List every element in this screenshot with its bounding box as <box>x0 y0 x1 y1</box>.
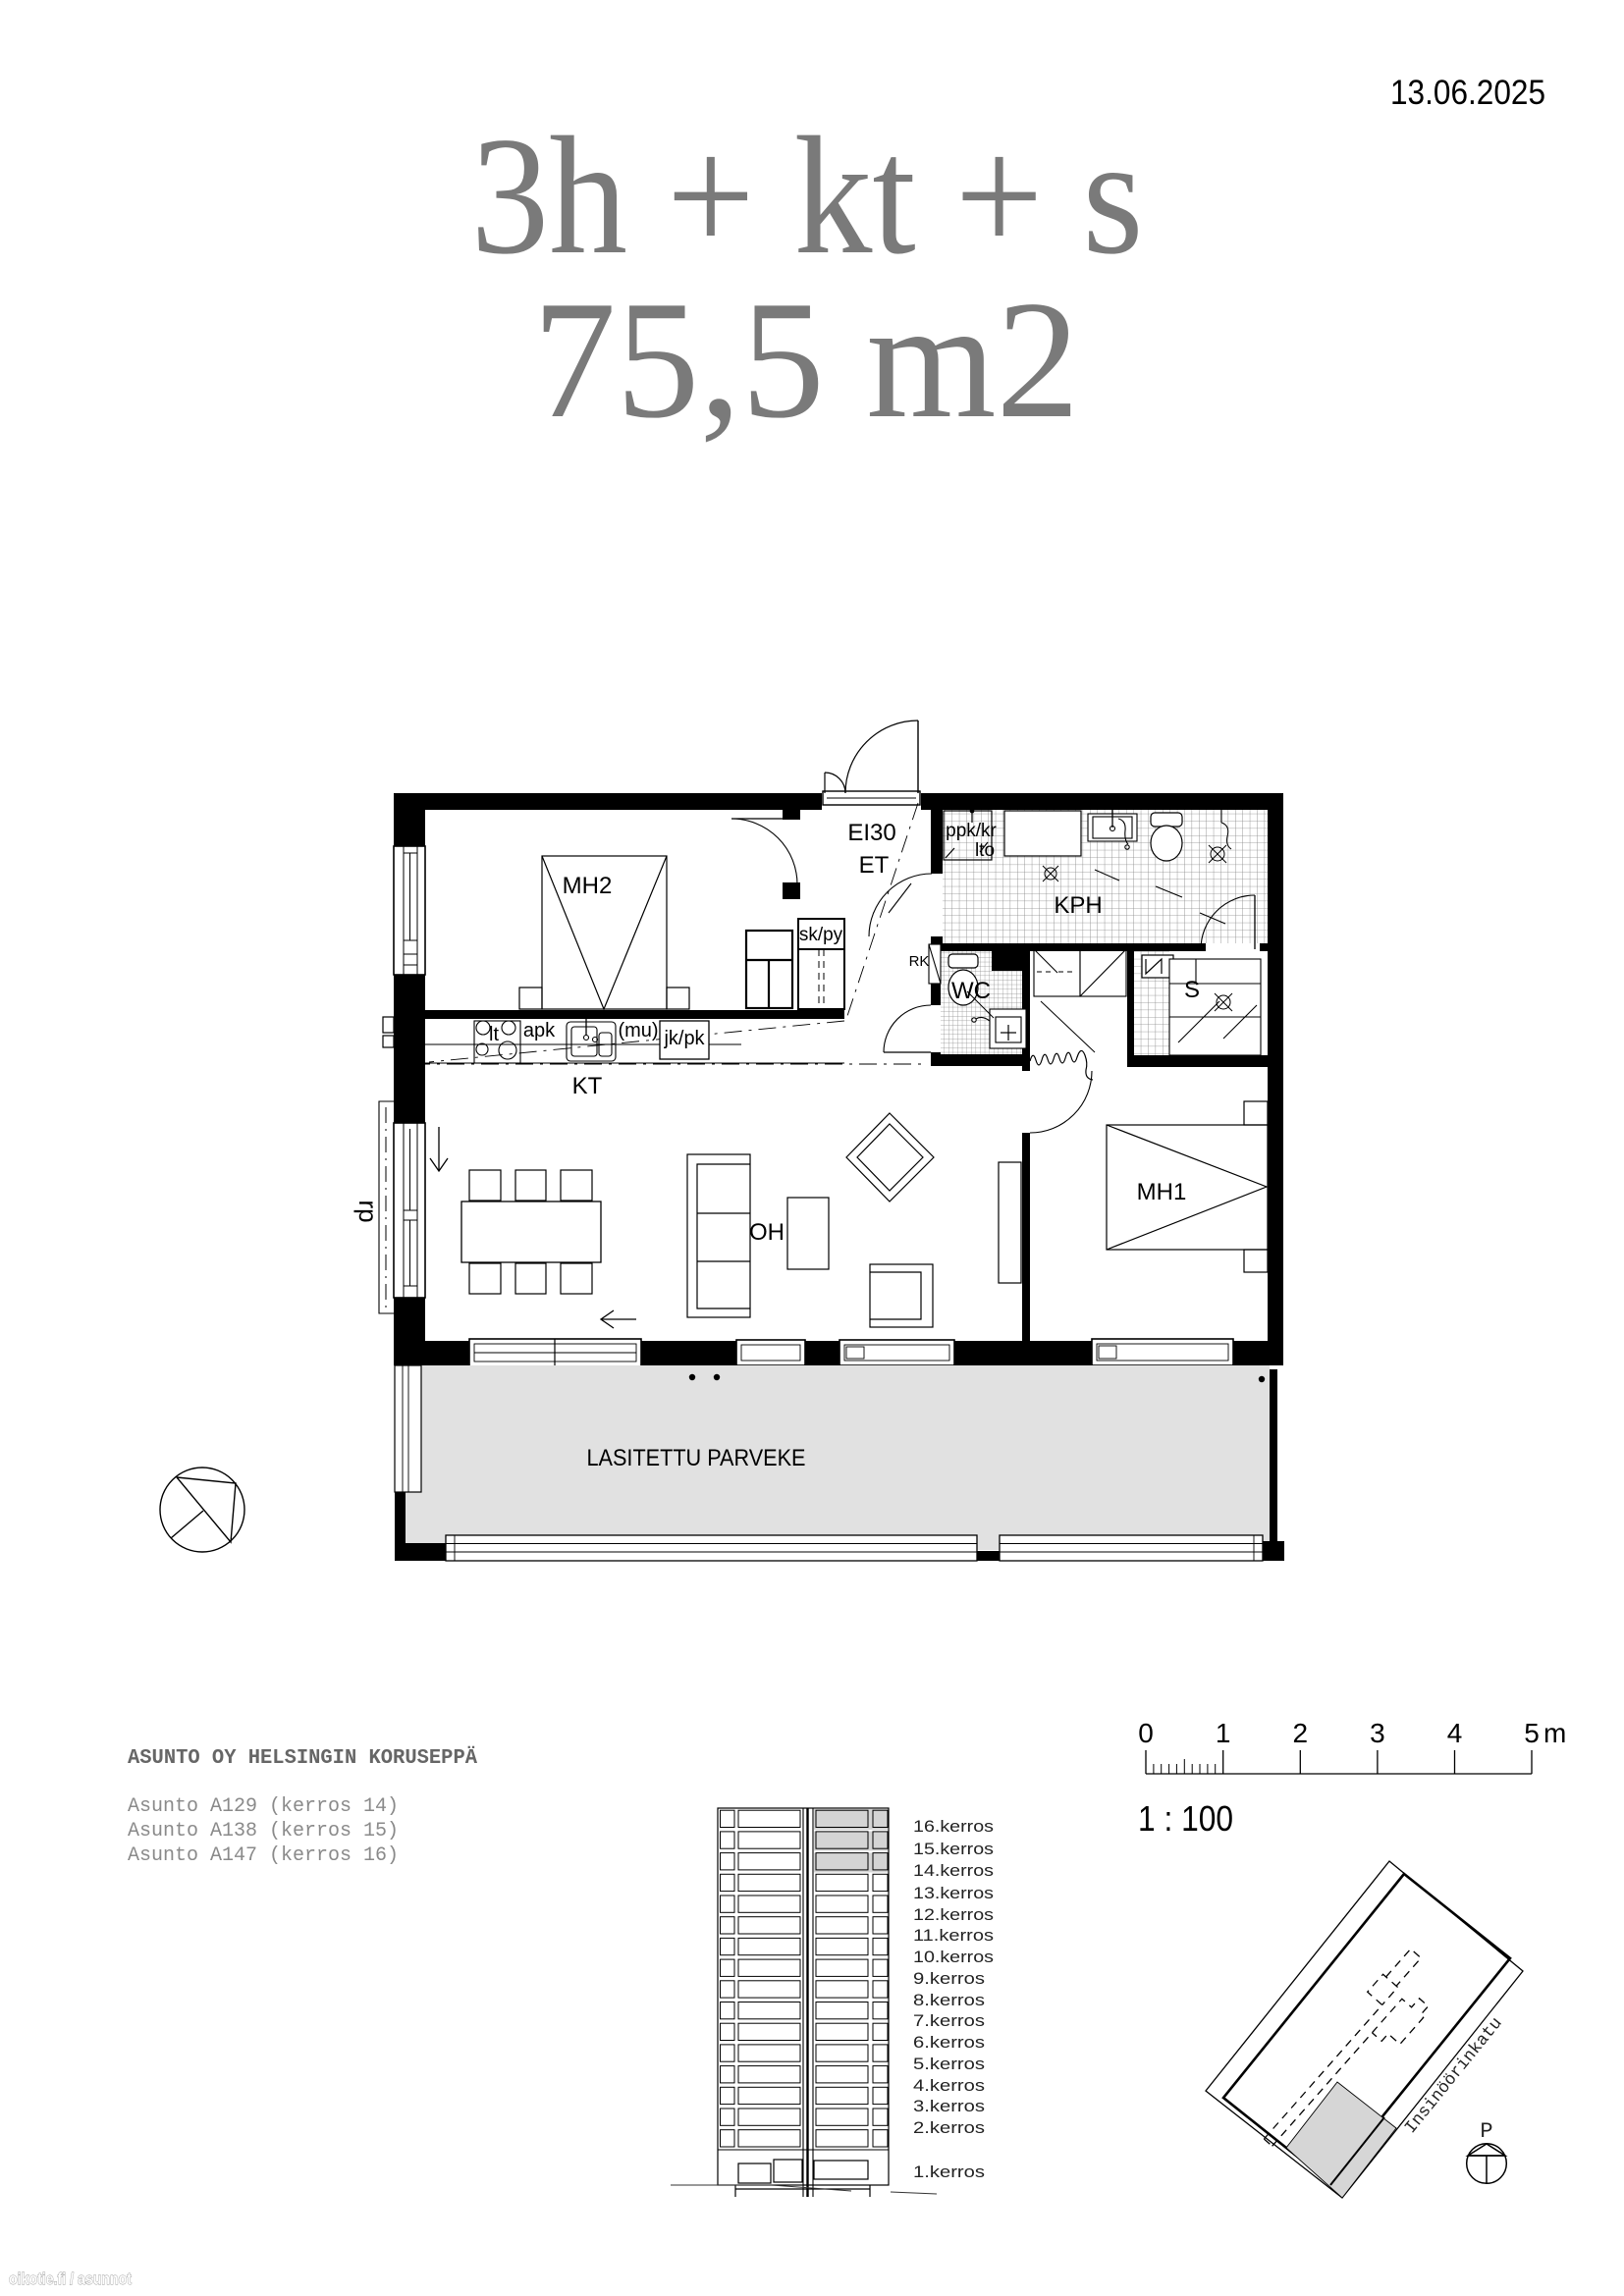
svg-text:jk/pk: jk/pk <box>663 1028 705 1049</box>
svg-text:0: 0 <box>1138 1718 1154 1748</box>
svg-text:ASUNTO OY HELSINGIN KORUSEPPÄ: ASUNTO OY HELSINGIN KORUSEPPÄ <box>128 1746 477 1770</box>
svg-text:Asunto A129 (kerros 14): Asunto A129 (kerros 14) <box>128 1795 399 1818</box>
svg-text:KT: KT <box>572 1073 603 1099</box>
svg-text:7.kerros: 7.kerros <box>913 2011 985 2030</box>
svg-text:apk: apk <box>523 1020 556 1041</box>
svg-text:15.kerros: 15.kerros <box>913 1840 994 1858</box>
svg-text:6.kerros: 6.kerros <box>913 2033 985 2052</box>
svg-text:5: 5 <box>1524 1718 1540 1748</box>
svg-text:Asunto A138 (kerros 15): Asunto A138 (kerros 15) <box>128 1820 399 1842</box>
svg-text:4.kerros: 4.kerros <box>913 2076 985 2095</box>
svg-text:lt: lt <box>489 1024 499 1045</box>
svg-text:P: P <box>1480 2119 1492 2144</box>
svg-text:12.kerros: 12.kerros <box>913 1905 994 1924</box>
svg-text:RK: RK <box>909 953 930 970</box>
svg-text:Asunto A147 (kerros 16): Asunto A147 (kerros 16) <box>128 1844 399 1867</box>
svg-text:9.kerros: 9.kerros <box>913 1969 985 1988</box>
svg-text:(mu): (mu) <box>618 1020 658 1041</box>
svg-text:MH2: MH2 <box>563 873 613 899</box>
svg-text:ppk/kr: ppk/kr <box>946 821 997 841</box>
svg-text:rp: rp <box>353 1200 383 1222</box>
svg-text:OH: OH <box>749 1219 785 1246</box>
svg-text:S: S <box>1184 977 1200 1003</box>
svg-text:LASITETTU PARVEKE: LASITETTU PARVEKE <box>587 1445 806 1471</box>
svg-text:1.kerros: 1.kerros <box>913 2163 985 2181</box>
svg-text:5.kerros: 5.kerros <box>913 2055 985 2073</box>
svg-text:1 : 100: 1 : 100 <box>1138 1798 1233 1839</box>
svg-text:4: 4 <box>1447 1718 1463 1748</box>
svg-text:KPH: KPH <box>1054 892 1102 919</box>
svg-text:EI30: EI30 <box>847 820 895 846</box>
svg-text:3h + kt + s: 3h + kt + s <box>471 103 1144 290</box>
svg-text:3.kerros: 3.kerros <box>913 2097 985 2115</box>
svg-text:ET: ET <box>859 852 890 879</box>
svg-text:lto: lto <box>975 840 995 861</box>
svg-text:8.kerros: 8.kerros <box>913 1991 985 2009</box>
svg-text:MH1: MH1 <box>1137 1179 1187 1205</box>
svg-text:75,5 m2: 75,5 m2 <box>533 267 1080 454</box>
svg-text:2: 2 <box>1293 1718 1309 1748</box>
svg-text:16.kerros: 16.kerros <box>913 1817 994 1836</box>
svg-text:14.kerros: 14.kerros <box>913 1861 994 1880</box>
svg-text:10.kerros: 10.kerros <box>913 1948 994 1966</box>
svg-text:WC: WC <box>951 978 991 1004</box>
svg-text:13.06.2025: 13.06.2025 <box>1390 74 1545 112</box>
svg-text:13.kerros: 13.kerros <box>913 1884 994 1902</box>
svg-text:m: m <box>1543 1718 1566 1748</box>
svg-text:sk/py: sk/py <box>799 925 843 945</box>
svg-text:1: 1 <box>1216 1718 1231 1748</box>
svg-text:oikotie.fi / asunnot: oikotie.fi / asunnot <box>9 2269 132 2288</box>
svg-text:3: 3 <box>1370 1718 1385 1748</box>
svg-text:11.kerros: 11.kerros <box>913 1926 994 1945</box>
svg-text:2.kerros: 2.kerros <box>913 2118 985 2137</box>
